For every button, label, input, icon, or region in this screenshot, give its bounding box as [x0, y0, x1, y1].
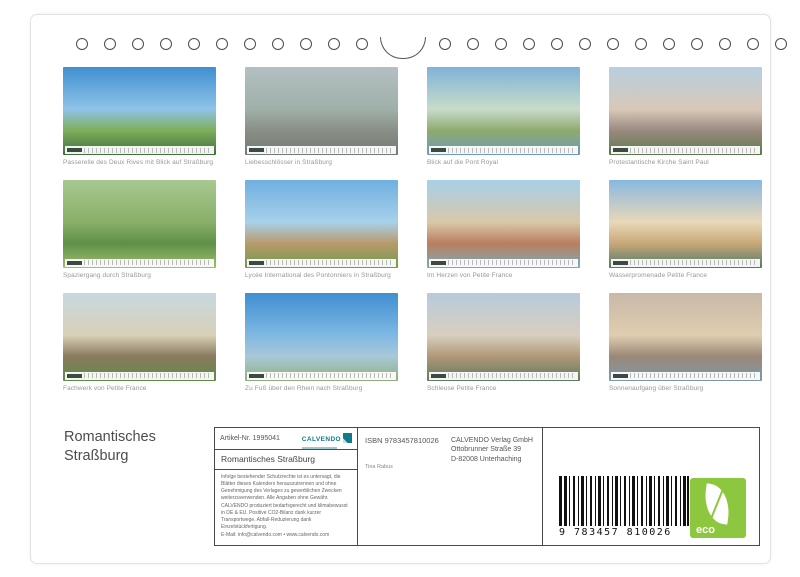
binding-hole	[691, 38, 703, 50]
calendar-title: Romantisches Straßburg	[64, 428, 156, 466]
date-cells	[630, 373, 758, 378]
calendar-page-thumbnail: Schleuse Petite France	[427, 293, 580, 393]
calendar-page-thumbnail: Blick auf die Pont Royal	[427, 67, 580, 167]
thumbnail-caption: Sonnenaufgang über Straßburg	[609, 385, 762, 393]
binding-hole	[188, 38, 200, 50]
binding-holes	[76, 37, 787, 51]
thumbnail-photo	[609, 180, 762, 268]
thumbnail-photo	[427, 293, 580, 381]
calvendo-calendar-icon	[343, 433, 352, 443]
thumbnail-caption: Im Herzen von Petite France	[427, 272, 580, 280]
calendar-page-thumbnail: Sonnenaufgang über Straßburg	[609, 293, 762, 393]
isbn-publisher-cell: ISBN 9783457810026 CALVENDO Verlag GmbH …	[358, 428, 543, 545]
thumbnail-datebar	[611, 146, 760, 154]
binding-hole	[216, 38, 228, 50]
article-number-row: Artikel-Nr. 1995041 CALVENDO	[215, 428, 357, 450]
publisher-line: Ottobrunner Straße 39	[451, 445, 533, 454]
binding-hole	[551, 38, 563, 50]
barcode-cell: 9 783457 810026 eco	[543, 428, 759, 545]
thumbnail-datebar	[65, 146, 214, 154]
legal-line: CALVENDO produziert bedarfsgerecht und k…	[221, 503, 351, 530]
binding-hole	[747, 38, 759, 50]
thumbnail-photo	[63, 293, 216, 381]
binding-hole	[775, 38, 787, 50]
thumbnail-photo	[427, 67, 580, 155]
month-label-tag	[249, 148, 264, 152]
calvendo-wordmark-block: CALVENDO	[302, 428, 341, 449]
date-cells	[266, 260, 394, 265]
binding-hole	[160, 38, 172, 50]
calvendo-tagline-rule	[302, 447, 337, 449]
date-cells	[448, 373, 576, 378]
calendar-page-thumbnail: Fachwerk von Petite France	[63, 293, 216, 393]
thumbnail-caption: Liebesschlösser in Straßburg	[245, 159, 398, 167]
binding-hole	[579, 38, 591, 50]
binding-hole	[76, 38, 88, 50]
thumbnail-datebar	[611, 259, 760, 267]
binding-hole	[635, 38, 647, 50]
thumbnail-photo	[245, 67, 398, 155]
date-cells	[630, 260, 758, 265]
calendar-page-thumbnail: Wasserpromenade Petite France	[609, 180, 762, 280]
thumbnail-photo	[245, 180, 398, 268]
calendar-back-cover-page: Passerelle des Deux Rives mit Blick auf …	[30, 14, 771, 564]
thumbnail-caption: Wasserpromenade Petite France	[609, 272, 762, 280]
barcode-bars	[559, 476, 689, 526]
binding-hole	[272, 38, 284, 50]
binding-hole	[328, 38, 340, 50]
thumbnail-caption: Protestantische Kirche Saint Paul	[609, 159, 762, 167]
calvendo-logo: CALVENDO	[302, 428, 352, 449]
legal-line: Infolge bestehender Schutzrechte ist es …	[221, 474, 351, 501]
date-cells	[448, 260, 576, 265]
calendar-page-thumbnail: Zu Fuß über den Rhein nach Straßburg	[245, 293, 398, 393]
calendar-page-thumbnail: Spaziergang durch Straßburg	[63, 180, 216, 280]
thumbnail-datebar	[611, 372, 760, 380]
calendar-page-thumbnail: Im Herzen von Petite France	[427, 180, 580, 280]
thumbnail-photo	[245, 293, 398, 381]
product-title: Romantisches Straßburg	[221, 454, 315, 464]
publisher-line: D-82008 Unterhaching	[451, 455, 533, 464]
thumbnail-photo	[63, 180, 216, 268]
binding-hole	[356, 38, 368, 50]
thumbnail-caption: Blick auf die Pont Royal	[427, 159, 580, 167]
date-cells	[266, 148, 394, 153]
publisher-info-table: Artikel-Nr. 1995041 CALVENDO Romantische…	[214, 427, 760, 546]
article-cell: Artikel-Nr. 1995041 CALVENDO Romantische…	[215, 428, 358, 545]
binding-hole	[663, 38, 675, 50]
thumbnail-datebar	[429, 259, 578, 267]
date-cells	[630, 148, 758, 153]
month-label-tag	[67, 261, 82, 265]
ean-barcode: 9 783457 810026	[559, 476, 687, 542]
calendar-page-thumbnail: Lycée International des Pontonniers in S…	[245, 180, 398, 280]
thumbnail-photo	[63, 67, 216, 155]
author-name: Tina Rabus	[365, 464, 393, 470]
thumbnail-datebar	[429, 372, 578, 380]
publisher-line: CALVENDO Verlag GmbH	[451, 436, 533, 445]
month-label-tag	[613, 148, 628, 152]
thumbnail-datebar	[247, 259, 396, 267]
eco-logo: eco	[690, 478, 746, 538]
thumbnail-grid: Passerelle des Deux Rives mit Blick auf …	[63, 67, 763, 392]
date-cells	[266, 373, 394, 378]
month-label-tag	[431, 374, 446, 378]
month-label-tag	[431, 148, 446, 152]
leaf-icon	[701, 483, 732, 524]
date-cells	[84, 148, 212, 153]
binding-hole	[104, 38, 116, 50]
thumbnail-datebar	[429, 146, 578, 154]
binding-hole	[719, 38, 731, 50]
thumbnail-datebar	[65, 372, 214, 380]
month-label-tag	[613, 261, 628, 265]
eco-label: eco	[696, 525, 715, 536]
binding-hole	[300, 38, 312, 50]
publisher-address: CALVENDO Verlag GmbH Ottobrunner Straße …	[451, 436, 533, 464]
thumbnail-photo	[427, 180, 580, 268]
binding-hole	[523, 38, 535, 50]
calendar-page-thumbnail: Liebesschlösser in Straßburg	[245, 67, 398, 167]
thumbnail-photo	[609, 293, 762, 381]
thumbnail-caption: Spaziergang durch Straßburg	[63, 272, 216, 280]
hanger-notch	[380, 37, 426, 59]
calendar-page-thumbnail: Passerelle des Deux Rives mit Blick auf …	[63, 67, 216, 167]
article-number: Artikel-Nr. 1995041	[220, 435, 280, 442]
thumbnail-photo	[609, 67, 762, 155]
thumbnail-caption: Zu Fuß über den Rhein nach Straßburg	[245, 385, 398, 393]
thumbnail-datebar	[247, 372, 396, 380]
calendar-page-thumbnail: Protestantische Kirche Saint Paul	[609, 67, 762, 167]
thumbnail-caption: Passerelle des Deux Rives mit Blick auf …	[63, 159, 216, 167]
binding-hole	[495, 38, 507, 50]
legal-text-block: Infolge bestehender Schutzrechte ist es …	[215, 470, 357, 545]
month-label-tag	[431, 261, 446, 265]
date-cells	[84, 373, 212, 378]
binding-hole	[244, 38, 256, 50]
binding-hole	[132, 38, 144, 50]
binding-hole	[467, 38, 479, 50]
thumbnail-caption: Schleuse Petite France	[427, 385, 580, 393]
month-label-tag	[249, 374, 264, 378]
barcode-digits: 9 783457 810026	[559, 527, 687, 538]
month-label-tag	[613, 374, 628, 378]
date-cells	[448, 148, 576, 153]
month-label-tag	[67, 148, 82, 152]
month-label-tag	[249, 261, 264, 265]
month-label-tag	[67, 374, 82, 378]
thumbnail-datebar	[65, 259, 214, 267]
product-title-row: Romantisches Straßburg	[215, 450, 357, 471]
legal-line: E-Mail: info@calvendo.com • www.calvendo…	[221, 532, 351, 539]
thumbnail-caption: Fachwerk von Petite France	[63, 385, 216, 393]
date-cells	[84, 260, 212, 265]
thumbnail-caption: Lycée International des Pontonniers in S…	[245, 272, 398, 280]
thumbnail-datebar	[247, 146, 396, 154]
binding-hole	[607, 38, 619, 50]
calvendo-wordmark: CALVENDO	[302, 436, 341, 443]
binding-hole	[439, 38, 451, 50]
